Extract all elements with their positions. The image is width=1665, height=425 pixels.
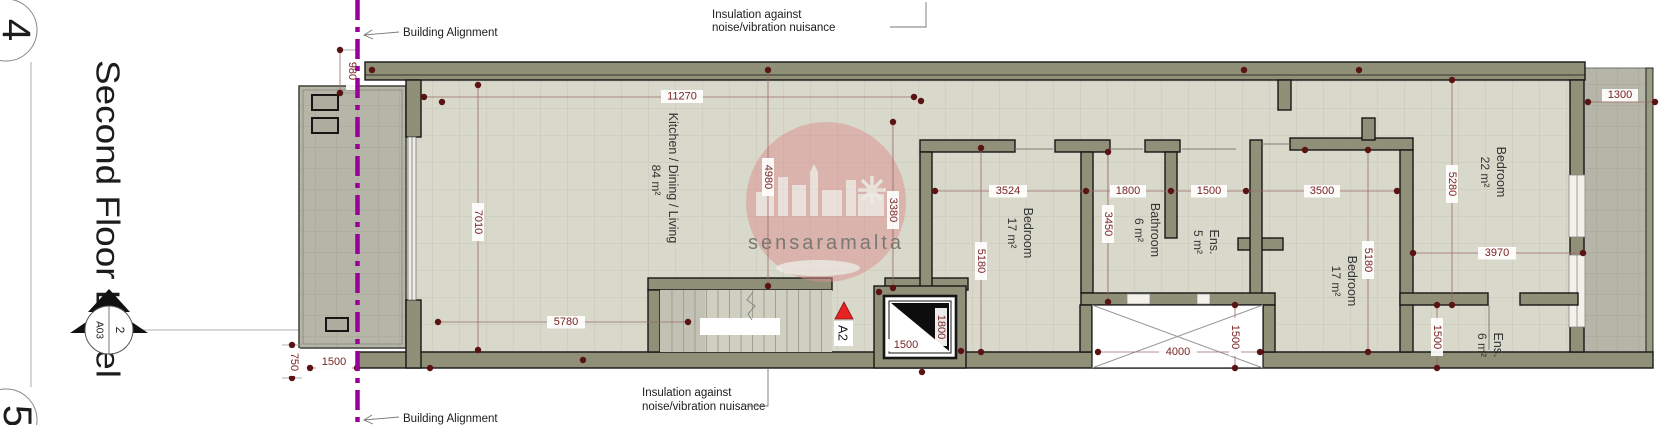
dim-1500-shaft: 1500 (1229, 325, 1241, 349)
room-area-kitchen: 84 m² (649, 165, 663, 196)
stair-marker-label: A2 (836, 325, 851, 341)
room-area-bedroom-3: 22 m² (1478, 157, 1492, 188)
partition (920, 152, 932, 290)
partition (1362, 118, 1375, 140)
room-area-ensuite-1: 5 m² (1191, 230, 1205, 254)
shaft-window (1197, 294, 1210, 304)
dim-5180-right: 5180 (1362, 248, 1374, 272)
grid-bubble-top-label: 4 (0, 19, 38, 41)
wall-left-stub-bottom (406, 300, 421, 368)
dim-1800: 1800 (1116, 185, 1140, 197)
dim-7010: 7010 (472, 210, 484, 234)
planter (312, 95, 338, 110)
floor-plan-sheet: 4 5 Second Floor Level A03 2 (0, 0, 1665, 425)
partition (1145, 140, 1180, 152)
room-label-ensuite-1: Ens. (1207, 229, 1221, 254)
wall-left-stub-top (406, 80, 421, 137)
dim-5180-left: 5180 (975, 249, 987, 273)
partition (1080, 305, 1092, 352)
insulation-note-bottom-line2: noise/vibration nuisance (642, 401, 765, 413)
dim-1500-right: 1500 (1431, 325, 1443, 349)
watermark: sensaramalta (746, 122, 906, 282)
stair-wall-north (648, 278, 832, 290)
partition (1250, 140, 1262, 305)
elevator (874, 286, 966, 368)
exterior-wall-bottom (358, 352, 1653, 368)
dim-3970: 3970 (1485, 247, 1509, 259)
stair-break-band (700, 318, 780, 335)
partition (1263, 305, 1275, 352)
dim-1800-elevator: 1800 (935, 315, 947, 339)
room-label-kitchen: Kitchen / Dining / Living (666, 113, 680, 244)
partition (1520, 293, 1578, 305)
building-alignment-label-bottom: Building Alignment (403, 413, 498, 425)
room-area-bedroom-1: 17 m² (1005, 218, 1019, 249)
room-area-bedroom-2: 17 m² (1329, 266, 1343, 297)
partition (1290, 138, 1413, 150)
room-label-bedroom-2: Bedroom (1345, 256, 1359, 307)
insulation-note-top-line1: Insulation against (712, 9, 802, 21)
section-sheet-ref: A03 (94, 321, 105, 339)
building-alignment-label-top: Building Alignment (403, 27, 498, 39)
dim-5280: 5280 (1446, 172, 1458, 196)
room-label-ensuite-2: Ens. (1491, 332, 1505, 357)
building-alignment-note-top: Building Alignment (364, 27, 498, 39)
shaft-window (1127, 294, 1150, 304)
planter (312, 118, 338, 133)
left-balcony (299, 86, 406, 348)
watermark-star-icon (858, 176, 886, 204)
partition (1165, 152, 1177, 238)
room-label-bedroom-3: Bedroom (1494, 147, 1508, 198)
partition (1400, 293, 1488, 305)
dim-3450: 3450 (1102, 212, 1114, 236)
dim-4000: 4000 (1166, 346, 1190, 358)
dim-11270: 11270 (667, 91, 697, 103)
dim-3524: 3524 (996, 185, 1020, 197)
insulation-note-top-line2: noise/vibration nuisance (712, 22, 835, 34)
insulation-note-top: Insulation against noise/vibration nuisa… (712, 2, 926, 34)
dim-4980: 4980 (762, 165, 774, 189)
dim-1500-elevator: 1500 (894, 339, 918, 351)
interior-floor (406, 80, 1570, 352)
insulation-note-bottom: Insulation against noise/vibration nuisa… (642, 369, 768, 413)
dim-1500: 1500 (1197, 185, 1221, 197)
dim-980: 980 (346, 62, 358, 80)
dim-3380: 3380 (887, 198, 899, 222)
grid-bubble-bottom-label: 5 (0, 405, 39, 425)
watermark-text: sensaramalta (748, 232, 904, 254)
section-number: 2 (113, 327, 127, 334)
balcony-glazing (408, 137, 416, 300)
insulation-note-bottom-line1: Insulation against (642, 387, 732, 399)
room-area-bathroom: 6 m² (1132, 218, 1146, 242)
building-alignment-note-bottom: Building Alignment (364, 413, 498, 425)
room-label-bedroom-1: Bedroom (1021, 208, 1035, 259)
room-area-ensuite-2: 6 m² (1475, 333, 1489, 357)
floor-plan: sensaramalta Kitchen / Dining / Living 8… (282, 47, 1658, 381)
stair-wall-west (648, 290, 660, 352)
partition (1081, 152, 1093, 293)
dim-1300: 1300 (1608, 89, 1632, 101)
room-label-bathroom: Bathroom (1148, 203, 1162, 257)
right-balcony (1584, 68, 1653, 368)
partition (920, 140, 1015, 152)
dim-750: 750 (288, 353, 300, 371)
dim-3500: 3500 (1310, 185, 1334, 197)
partition (1055, 140, 1110, 152)
planter (326, 318, 348, 331)
dim-1500-bottom-left: 1500 (322, 356, 346, 368)
dim-5780: 5780 (554, 316, 578, 328)
partition (1278, 80, 1291, 110)
exterior-wall-top (365, 62, 1585, 80)
